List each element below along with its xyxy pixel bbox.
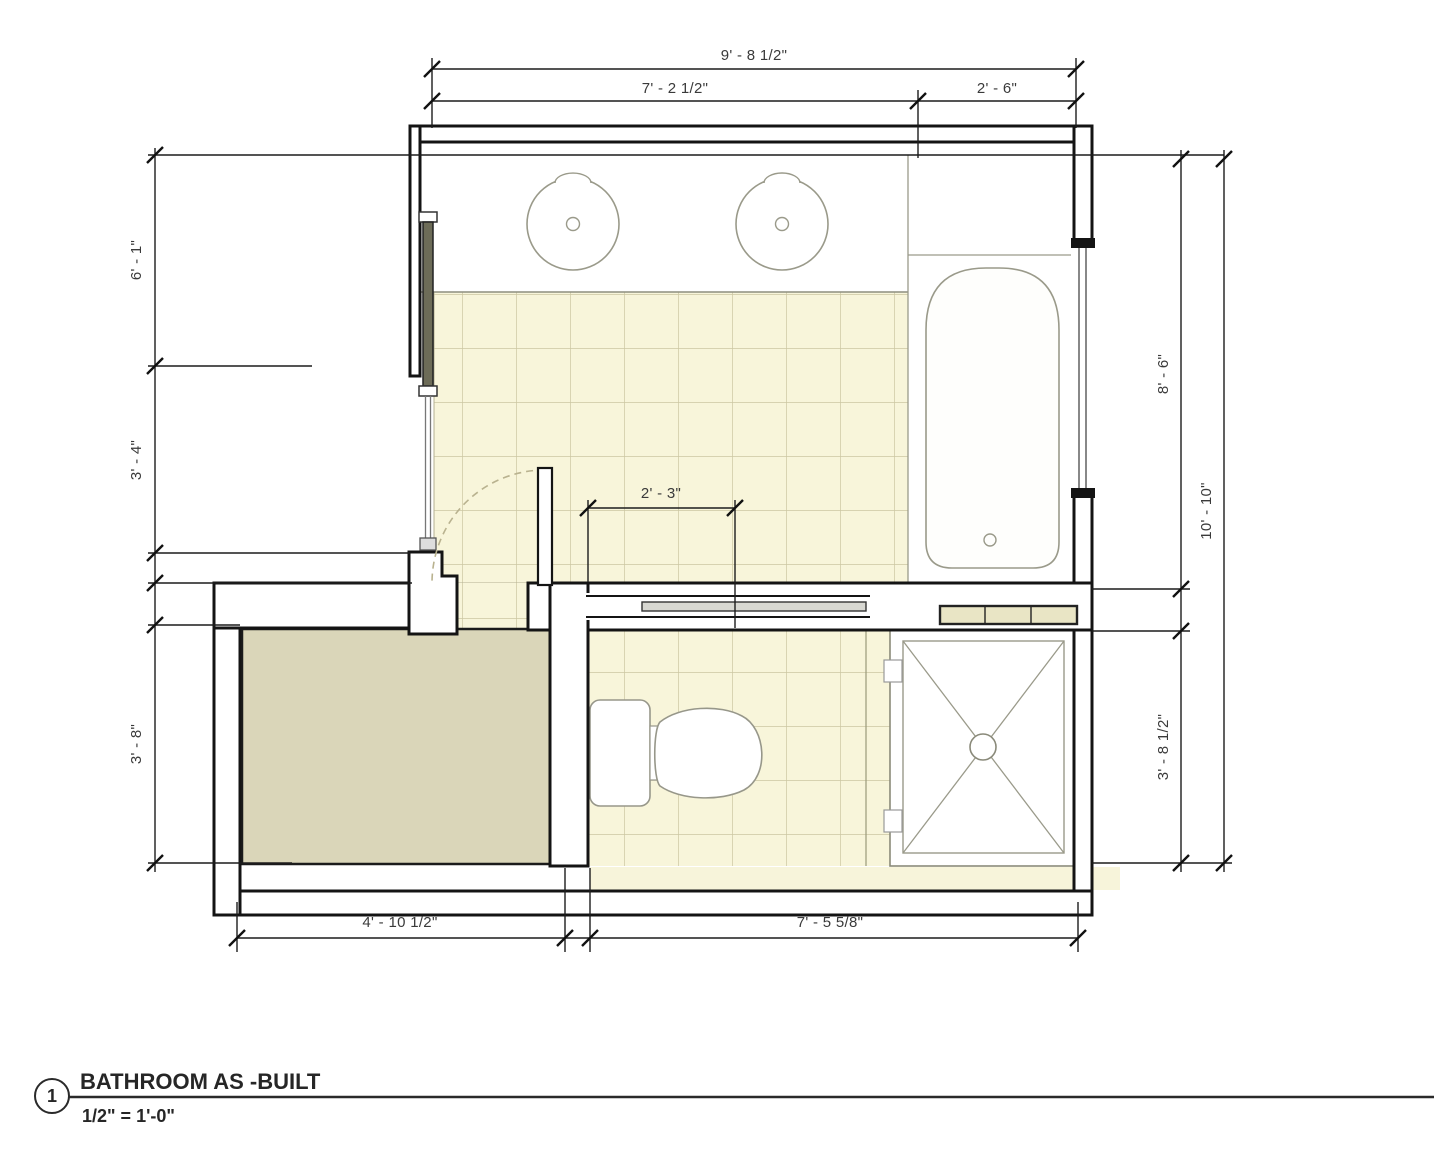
- door-leaf: [538, 468, 552, 585]
- wall-closet-left: [214, 585, 240, 915]
- window-right: [1071, 238, 1095, 498]
- dim-bottom-right: 7' - 5 5/8": [797, 914, 864, 931]
- dim-bottom-left: 4' - 10 1/2": [362, 914, 437, 931]
- shower-curb: [940, 606, 1077, 624]
- closet-carpet: [242, 629, 550, 864]
- dim-right-overall: 10' - 10": [1198, 482, 1215, 540]
- detail-marker-number: 1: [47, 1086, 57, 1106]
- shower: [884, 628, 1077, 866]
- toilet-bowl: [655, 708, 762, 798]
- closet-room: [242, 629, 550, 864]
- toilet: [590, 700, 762, 806]
- dim-left-lower: 3' - 8": [128, 724, 145, 764]
- wall-top: [410, 126, 1092, 142]
- pocket-door: [586, 593, 870, 620]
- dim-right-tub: 8' - 6": [1155, 354, 1172, 394]
- drawing-scale: 1/2" = 1'-0": [82, 1106, 175, 1126]
- pocket-door-panel: [642, 602, 866, 611]
- dim-top-right: 2' - 6": [977, 80, 1017, 97]
- wall-closet-top: [214, 583, 412, 628]
- bathtub: [926, 268, 1059, 568]
- dim-left-upper: 6' - 1": [128, 240, 145, 280]
- wall-bottom: [214, 891, 1092, 915]
- toilet-tank: [590, 700, 650, 806]
- dim-pocket-door: 2' - 3": [641, 485, 681, 502]
- dim-top-left: 7' - 2 1/2": [642, 80, 709, 97]
- dimension-right: 8' - 6" 3' - 8 1/2" 10' - 10": [1092, 150, 1232, 872]
- dim-left-middle: 3' - 4": [128, 440, 145, 480]
- shower-drain-icon: [970, 734, 996, 760]
- wall-toilet-left: [550, 583, 588, 866]
- bathroom-floor-plan: 9' - 8 1/2" 7' - 2 1/2" 2' - 6" 6' - 1" …: [0, 0, 1440, 1156]
- title-block: 1 BATHROOM AS -BUILT 1/2" = 1'-0": [35, 1069, 1434, 1126]
- dim-right-shower: 3' - 8 1/2": [1155, 714, 1172, 781]
- bathtub-alcove: [908, 142, 1076, 583]
- wall-left-stub: [410, 126, 420, 376]
- vanity-counter: [420, 142, 908, 292]
- floor-strip-beyond: [590, 867, 1120, 890]
- drawing-title: BATHROOM AS -BUILT: [80, 1069, 321, 1094]
- dim-top-overall: 9' - 8 1/2": [721, 47, 788, 64]
